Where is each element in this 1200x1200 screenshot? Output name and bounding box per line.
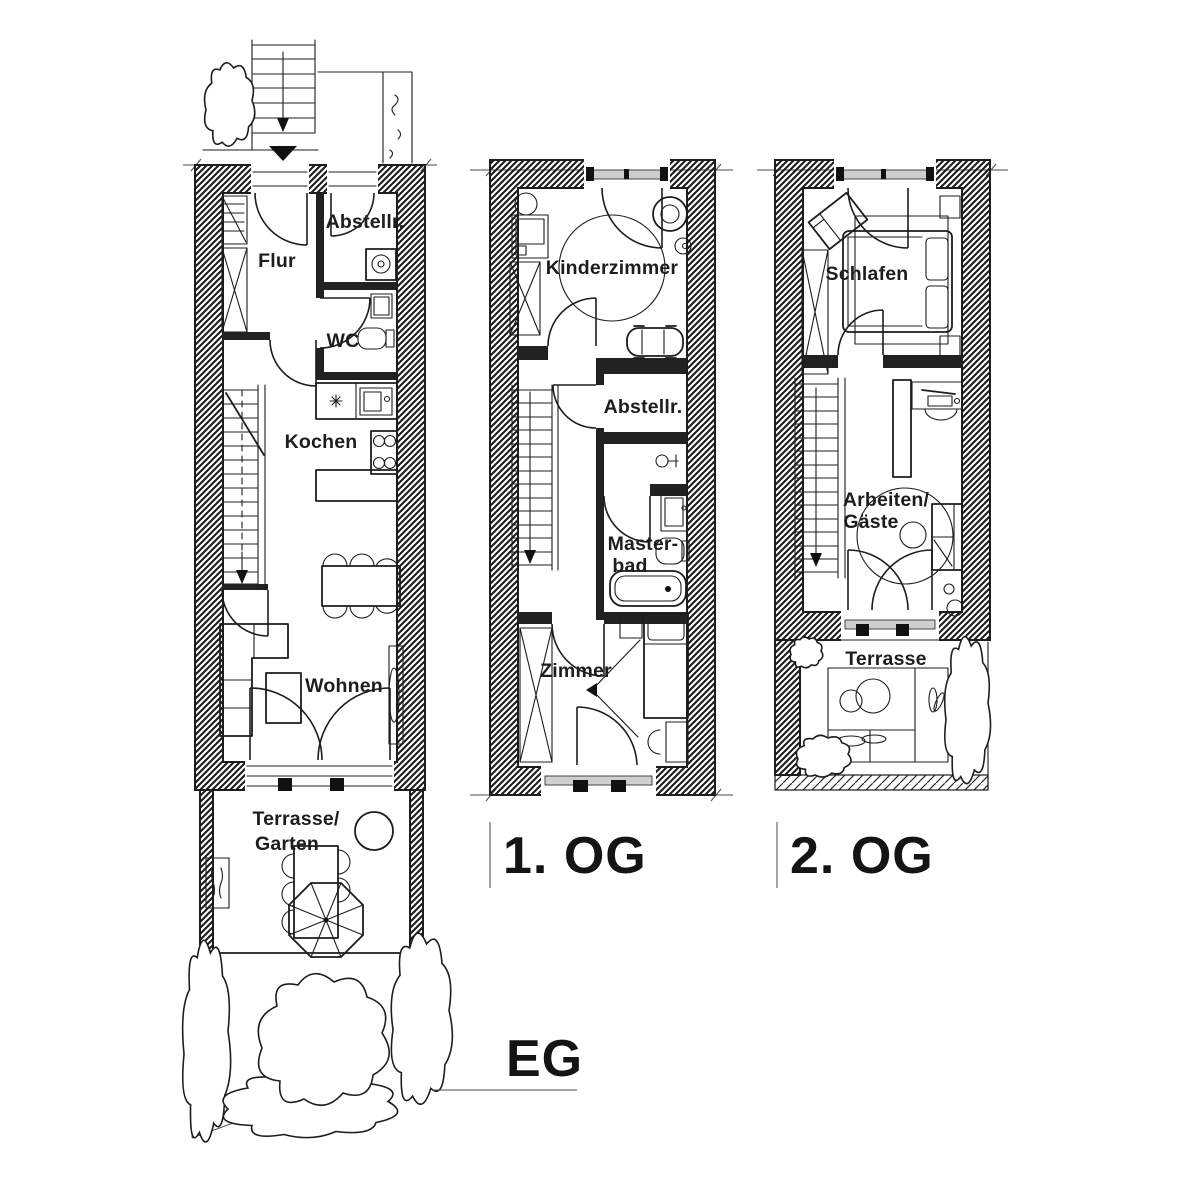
hedge-icon: [945, 637, 991, 784]
og2-outer-walls: [775, 160, 990, 640]
room-label-kochen: Kochen: [285, 431, 358, 453]
room-label-abstellraum: Abstellr.: [326, 211, 405, 233]
room-label-terrasse-garten-2: Garten: [255, 833, 319, 855]
window: [834, 158, 936, 192]
bush-icon: [796, 735, 851, 777]
partition-cabinet: [893, 380, 911, 477]
wardrobe: [222, 248, 247, 332]
sketch-lines: [592, 640, 640, 737]
room-label-zimmer: Zimmer: [540, 660, 612, 682]
stool: [900, 522, 926, 548]
toilet: [358, 328, 394, 349]
tree-icon: [355, 812, 393, 850]
wc-sink: [371, 294, 392, 318]
plan-og2: Schlafen Arbeiten/ Gäste Terrasse: [757, 158, 1008, 888]
armchair: [653, 197, 691, 254]
room-label-masterbad-2: bad: [612, 555, 647, 577]
window: [584, 158, 670, 192]
terrace-garden: Terrasse/ Garten: [183, 790, 453, 1142]
plan-og1: Kinderzimmer Abstellr. Master- bad Zimme…: [470, 158, 733, 888]
room-label-flur: Flur: [258, 250, 296, 272]
sofa: [220, 624, 288, 736]
storage-door-opening: [327, 163, 378, 197]
shower-faucet-icon: [656, 455, 678, 467]
sketch-arrow: [586, 683, 597, 697]
room-label-wohnen: Wohnen: [305, 675, 383, 697]
room-label-masterbad-1: Master-: [608, 533, 679, 555]
room-label-terrasse-garten-1: Terrasse/: [252, 808, 339, 830]
entrance-fence: [318, 72, 412, 163]
room-label-wc: WC: [327, 330, 360, 352]
desk: [648, 722, 688, 762]
plan-eg: Flur Abstellr. WC Kochen Wohnen: [183, 40, 583, 1142]
kitchen-sink: [360, 388, 392, 415]
plant-icon: [944, 584, 954, 594]
staircase: [223, 385, 265, 588]
wardrobe: [520, 628, 552, 762]
nightstand: [940, 196, 960, 218]
room-label-abstellraum: Abstellr.: [604, 396, 683, 418]
stove: [371, 431, 397, 474]
room-label-terrasse: Terrasse: [845, 648, 926, 670]
roof-terrace: Terrasse: [775, 637, 991, 790]
bed: [620, 614, 688, 718]
hedge-icon: [391, 933, 452, 1104]
floor-plan-sheet: Flur Abstellr. WC Kochen Wohnen: [0, 0, 1200, 1200]
floor-label-og1: 1. OG: [503, 827, 647, 885]
parasol-icon: [289, 883, 363, 957]
room-label-schlafen: Schlafen: [826, 263, 909, 285]
washing-machine: [366, 249, 396, 280]
entrance-marker-icon: [269, 146, 297, 161]
room-label-arbeiten-1: Arbeiten/: [843, 489, 930, 511]
floor-label-eg: EG: [506, 1030, 583, 1088]
room-label-kinderzimmer: Kinderzimmer: [546, 257, 679, 279]
floor-label-og2: 2. OG: [790, 827, 934, 885]
entrance-door-opening: [251, 163, 309, 197]
coat-rack: [222, 196, 247, 244]
bathroom-sink: [661, 493, 687, 531]
nightstand: [940, 336, 960, 358]
og1-interior-walls: [518, 346, 687, 624]
bush-icon: [790, 637, 823, 668]
terrace-door-opening: [245, 758, 394, 794]
stair-direction-arrow: [277, 118, 289, 132]
hedge-icon: [183, 940, 231, 1142]
coffee-table: [266, 673, 301, 723]
dining-table: [322, 554, 400, 618]
room-label-arbeiten-2: Gäste: [843, 511, 898, 533]
window: [541, 763, 656, 797]
terrace-door-opening: [841, 608, 939, 642]
bush-icon: [205, 63, 255, 146]
toy-car-icon: [627, 326, 683, 358]
desk: [912, 382, 962, 420]
floor-plan-drawing: Flur Abstellr. WC Kochen Wohnen: [0, 0, 1200, 1200]
